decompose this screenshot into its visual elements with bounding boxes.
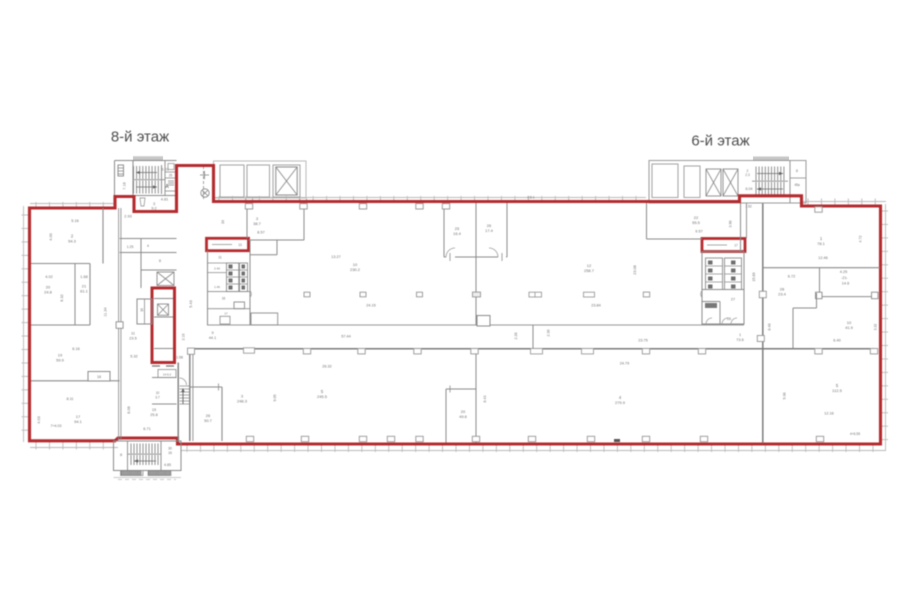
- svg-text:24.8: 24.8: [44, 290, 53, 295]
- svg-text:4.72: 4.72: [859, 236, 863, 243]
- svg-text:9.05: 9.05: [273, 395, 277, 402]
- svg-text:25: 25: [169, 174, 173, 178]
- svg-text:78.1: 78.1: [817, 241, 826, 246]
- svg-text:4.85: 4.85: [164, 463, 171, 467]
- svg-text:23.84: 23.84: [591, 304, 601, 308]
- svg-text:23.4: 23.4: [778, 292, 787, 297]
- svg-text:11.34: 11.34: [104, 307, 108, 316]
- svg-text:14.9.2: 14.9.2: [163, 373, 172, 377]
- svg-text:16: 16: [140, 308, 144, 312]
- svg-text:1.68: 1.68: [80, 275, 87, 279]
- svg-text:27: 27: [731, 298, 735, 302]
- svg-text:6.16: 6.16: [72, 347, 79, 351]
- svg-text:8: 8: [159, 259, 161, 263]
- svg-text:112.5: 112.5: [832, 388, 842, 393]
- svg-text:3: 3: [153, 202, 155, 206]
- svg-text:30: 30: [168, 447, 172, 451]
- svg-text:5.16: 5.16: [71, 219, 78, 223]
- svg-text:2.28: 2.28: [514, 333, 518, 340]
- svg-text:15.89: 15.89: [752, 273, 756, 282]
- svg-text:38.7: 38.7: [253, 221, 262, 226]
- svg-text:4.25: 4.25: [840, 270, 847, 274]
- svg-text:6.06: 6.06: [127, 406, 131, 413]
- svg-text:8-й этаж: 8-й этаж: [111, 129, 169, 146]
- svg-text:23.75: 23.75: [638, 339, 648, 343]
- svg-text:41.9: 41.9: [845, 325, 854, 330]
- svg-text:49.6: 49.6: [459, 414, 468, 419]
- svg-text:1: 1: [739, 333, 741, 337]
- svg-text:6.71: 6.71: [143, 427, 150, 431]
- svg-text:17.4: 17.4: [485, 228, 494, 233]
- svg-text:8.11: 8.11: [66, 397, 73, 401]
- svg-text:12.46: 12.46: [818, 256, 828, 260]
- svg-text:16: 16: [168, 451, 172, 455]
- svg-text:8: 8: [796, 169, 798, 173]
- svg-text:55.5: 55.5: [692, 220, 701, 225]
- svg-text:2.93: 2.93: [124, 215, 131, 219]
- svg-text:5.43: 5.43: [189, 300, 193, 307]
- svg-text:4.00: 4.00: [49, 233, 53, 240]
- svg-text:248.3: 248.3: [237, 399, 248, 404]
- svg-text:11: 11: [218, 256, 222, 260]
- svg-text:54.3: 54.3: [68, 239, 77, 244]
- svg-text:24.15: 24.15: [366, 304, 376, 308]
- svg-text:4.81: 4.81: [161, 198, 168, 202]
- svg-text:2.36: 2.36: [547, 330, 551, 337]
- svg-text:10: 10: [156, 391, 160, 395]
- svg-text:57.44: 57.44: [341, 335, 351, 339]
- svg-text:1.25: 1.25: [127, 245, 134, 249]
- svg-text:2B: 2B: [727, 317, 731, 321]
- svg-text:245.5: 245.5: [317, 394, 328, 399]
- svg-text:2.40: 2.40: [214, 267, 220, 271]
- svg-text:279.9: 279.9: [615, 400, 626, 405]
- svg-text:3.96: 3.96: [729, 221, 733, 228]
- svg-text:59.9: 59.9: [56, 358, 65, 363]
- svg-text:3.7: 3.7: [155, 396, 160, 400]
- svg-text:6.72: 6.72: [788, 275, 795, 279]
- svg-text:230.2: 230.2: [350, 267, 361, 272]
- svg-text:9.2: 9.2: [151, 207, 156, 211]
- svg-text:9.38: 9.38: [783, 393, 787, 400]
- svg-text:6-й этаж: 6-й этаж: [691, 133, 749, 150]
- svg-text:8.48: 8.48: [768, 324, 772, 331]
- svg-text:18: 18: [97, 375, 101, 379]
- svg-text:23.08: 23.08: [633, 265, 637, 275]
- svg-text:8: 8: [120, 453, 122, 457]
- svg-text:4: 4: [147, 244, 149, 248]
- svg-text:2.3: 2.3: [745, 173, 750, 177]
- svg-text:17: 17: [224, 312, 228, 316]
- svg-text:6.40: 6.40: [833, 339, 840, 343]
- svg-text:14.6: 14.6: [842, 282, 849, 286]
- svg-text:24.79: 24.79: [620, 362, 630, 366]
- svg-text:94.1: 94.1: [74, 419, 83, 424]
- svg-text:8.57: 8.57: [257, 231, 264, 235]
- svg-text:8.43: 8.43: [483, 396, 487, 403]
- svg-text:7+4.03: 7+4.03: [50, 424, 61, 428]
- svg-text:-21-: -21-: [841, 276, 848, 280]
- svg-text:45a: 45a: [794, 183, 800, 187]
- svg-text:5.32: 5.32: [130, 355, 137, 359]
- svg-text:25.8: 25.8: [150, 413, 157, 417]
- svg-text:16.4: 16.4: [453, 231, 462, 236]
- svg-text:9.57: 9.57: [695, 230, 702, 234]
- svg-text:3.32: 3.32: [874, 324, 878, 331]
- svg-text:1.58: 1.58: [176, 356, 183, 360]
- svg-text:15: 15: [152, 408, 156, 412]
- svg-text:13.27: 13.27: [331, 255, 341, 259]
- svg-text:61.1: 61.1: [80, 289, 89, 294]
- svg-text:4+6.55: 4+6.55: [850, 432, 860, 436]
- svg-text:73.6: 73.6: [736, 338, 743, 342]
- svg-text:26.32: 26.32: [322, 365, 332, 369]
- svg-text:13: 13: [238, 243, 242, 247]
- svg-text:4.03: 4.03: [37, 416, 41, 423]
- svg-text:12.16: 12.16: [824, 412, 834, 416]
- svg-text:50.7: 50.7: [204, 418, 213, 423]
- svg-text:2.16: 2.16: [182, 334, 186, 341]
- svg-text:17: 17: [734, 244, 738, 248]
- svg-text:258.7: 258.7: [584, 268, 595, 273]
- svg-text:16: 16: [221, 220, 225, 224]
- svg-text:11: 11: [131, 332, 135, 336]
- svg-text:7.16: 7.16: [123, 182, 127, 189]
- svg-text:44.1: 44.1: [209, 336, 216, 340]
- svg-text:4.02: 4.02: [45, 275, 52, 279]
- svg-text:23.5: 23.5: [129, 337, 136, 341]
- svg-text:16: 16: [222, 297, 226, 301]
- svg-text:6.04: 6.04: [746, 187, 753, 191]
- svg-text:6.32: 6.32: [60, 294, 64, 301]
- svg-text:1.46: 1.46: [214, 285, 220, 289]
- svg-text:2.5-1: 2.5-1: [527, 196, 534, 200]
- svg-text:9: 9: [211, 331, 213, 335]
